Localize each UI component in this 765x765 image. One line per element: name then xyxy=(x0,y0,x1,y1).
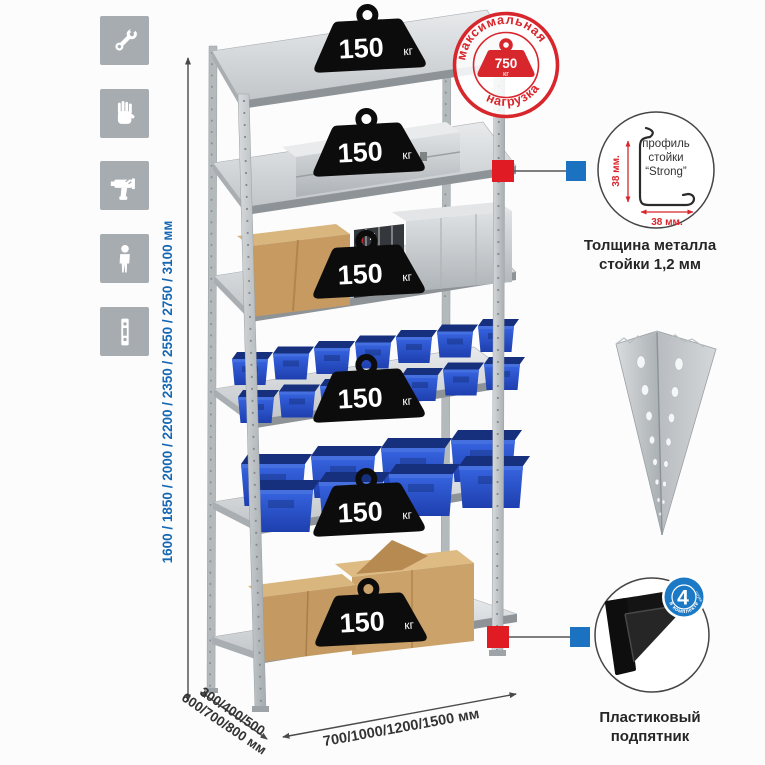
profile-caption-2: стойки 1,2 мм xyxy=(599,256,701,273)
load-value: 150 xyxy=(337,136,384,168)
angle-post-graphic xyxy=(616,331,716,535)
profile-label-3: “Strong” xyxy=(645,166,687,178)
callout-blue-marker xyxy=(566,161,586,181)
height-dimension: 1600 / 1850 / 2000 / 2200 / 2350 / 2550 … xyxy=(160,58,188,701)
load-unit: кг xyxy=(402,394,413,409)
load-badge-2: 150 кг xyxy=(310,108,425,177)
load-value: 150 xyxy=(337,382,384,414)
foot-caption-2: подпятник xyxy=(611,728,690,745)
foot-count-value: 4 xyxy=(677,587,689,610)
profile-caption-1: Толщина металла xyxy=(584,237,717,254)
profile-label-1: профиль xyxy=(642,138,690,150)
height-options-label: 1600 / 1850 / 2000 / 2200 / 2350 / 2550 … xyxy=(160,221,175,564)
callout-profile xyxy=(492,160,586,182)
profile-label-2: стойки xyxy=(648,152,683,164)
width-options-label: 700/1000/1200/1500 мм xyxy=(322,706,481,750)
shelving-rack-illustration: 1600 / 1850 / 2000 / 2200 / 2350 / 2550 … xyxy=(0,0,765,765)
load-unit: кг xyxy=(404,618,415,633)
load-unit: кг xyxy=(402,270,413,285)
stamp-unit: кг xyxy=(503,69,509,78)
width-dimension: 700/1000/1200/1500 мм xyxy=(283,694,516,750)
callout-red-marker xyxy=(492,160,514,182)
foot-detail: 4 штуки в комплекте Пластиковый подпятни… xyxy=(595,575,709,745)
callout-foot xyxy=(487,626,590,648)
load-value: 150 xyxy=(338,32,385,64)
load-badge-1: 150 кг xyxy=(311,4,426,73)
profile-dim-vertical: 38 мм. xyxy=(611,155,622,187)
load-value: 150 xyxy=(337,496,384,528)
load-value: 150 xyxy=(337,258,384,290)
load-unit: кг xyxy=(403,44,414,59)
profile-dim-horizontal: 38 мм. xyxy=(651,217,683,228)
foot-caption-1: Пластиковый xyxy=(599,709,700,726)
foot-count-badge: 4 штуки в комплекте xyxy=(662,575,706,619)
profile-detail: 38 мм. 38 мм. профиль стойки “Strong” То… xyxy=(584,112,717,273)
callout-red-marker xyxy=(487,626,509,648)
callout-blue-marker xyxy=(570,627,590,647)
load-value: 150 xyxy=(339,606,386,638)
load-unit: кг xyxy=(402,508,413,523)
load-unit: кг xyxy=(402,148,413,163)
